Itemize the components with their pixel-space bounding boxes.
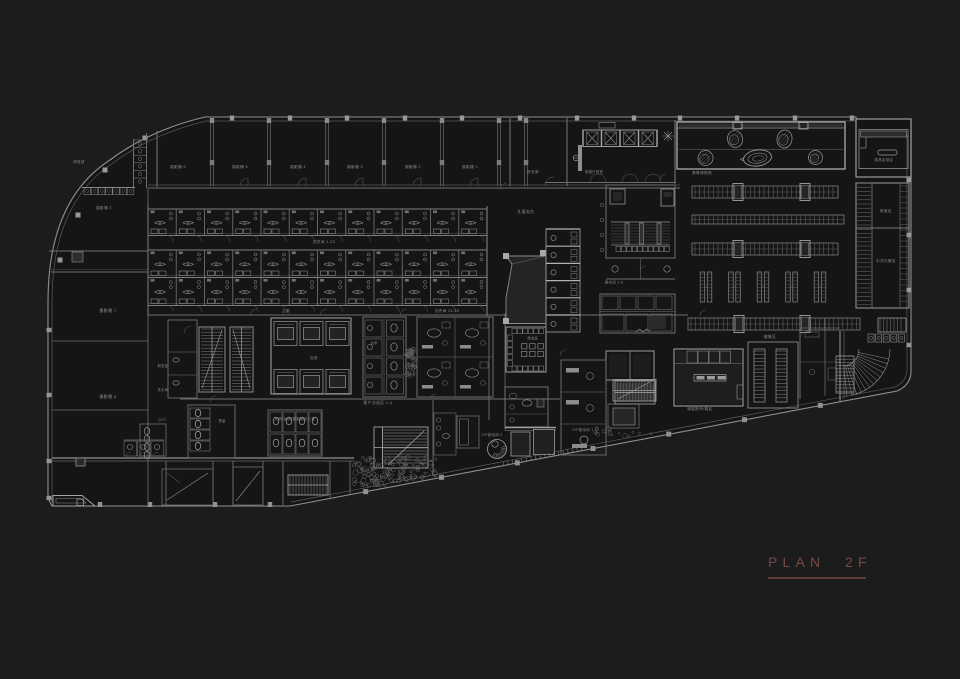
svg-text:摄影棚 4: 摄影棚 4 xyxy=(290,164,306,169)
svg-text:摄影棚 7: 摄影棚 7 xyxy=(99,307,117,313)
svg-text:摄影棚 2: 摄影棚 2 xyxy=(405,164,421,169)
svg-text:试衣间 24-50: 试衣间 24-50 xyxy=(435,308,460,313)
svg-text:更衣间 1-8: 更衣间 1-8 xyxy=(605,280,623,285)
svg-text:陶瓷区: 陶瓷区 xyxy=(528,336,539,341)
svg-text:主廊: 主廊 xyxy=(282,308,290,313)
svg-text:PLAN: PLAN xyxy=(768,554,825,570)
svg-text:试衣间 1-23: 试衣间 1-23 xyxy=(313,239,335,244)
svg-text:预留: 预留 xyxy=(218,418,225,423)
svg-text:摄影棚 4: 摄影棚 4 xyxy=(96,205,112,210)
svg-text:洗手间: 洗手间 xyxy=(158,387,169,392)
svg-text:电梯厅前室: 电梯厅前室 xyxy=(585,169,604,174)
svg-text:包房: 包房 xyxy=(310,355,318,360)
svg-text:摄影棚 6: 摄影棚 6 xyxy=(170,164,186,169)
svg-text:男厕/女厕/摄影棚办公室: 男厕/女厕/摄影棚办公室 xyxy=(275,416,316,421)
svg-text:珠宝区: 珠宝区 xyxy=(880,208,892,213)
svg-text:中式礼服区: 中式礼服区 xyxy=(876,258,896,263)
svg-text:研发部: 研发部 xyxy=(73,159,85,164)
svg-text:翡翠博物馆: 翡翠博物馆 xyxy=(692,170,712,175)
svg-text:VIP接待间 2: VIP接待间 2 xyxy=(481,432,502,437)
svg-text:服装陈列/鞋区: 服装陈列/鞋区 xyxy=(687,406,712,411)
svg-text:精品定制区: 精品定制区 xyxy=(875,157,894,162)
svg-text:佛像区: 佛像区 xyxy=(764,334,777,339)
svg-text:客户洽谈区 1-4: 客户洽谈区 1-4 xyxy=(363,400,392,405)
svg-text:礼服务台: 礼服务台 xyxy=(518,209,535,214)
svg-text:洗衣房: 洗衣房 xyxy=(527,169,539,174)
svg-text:OTO: OTO xyxy=(158,418,166,422)
svg-text:摄影棚 3: 摄影棚 3 xyxy=(347,164,363,169)
svg-text:制型区: 制型区 xyxy=(158,363,169,368)
svg-text:女厕: 女厕 xyxy=(371,340,378,345)
svg-text:摄影棚 5: 摄影棚 5 xyxy=(232,164,248,169)
svg-text:2F: 2F xyxy=(845,554,872,570)
svg-text:摄影棚 1: 摄影棚 1 xyxy=(462,164,478,169)
svg-text:VIP接待间 1: VIP接待间 1 xyxy=(572,427,593,432)
svg-text:摄影棚 8: 摄影棚 8 xyxy=(99,393,117,399)
